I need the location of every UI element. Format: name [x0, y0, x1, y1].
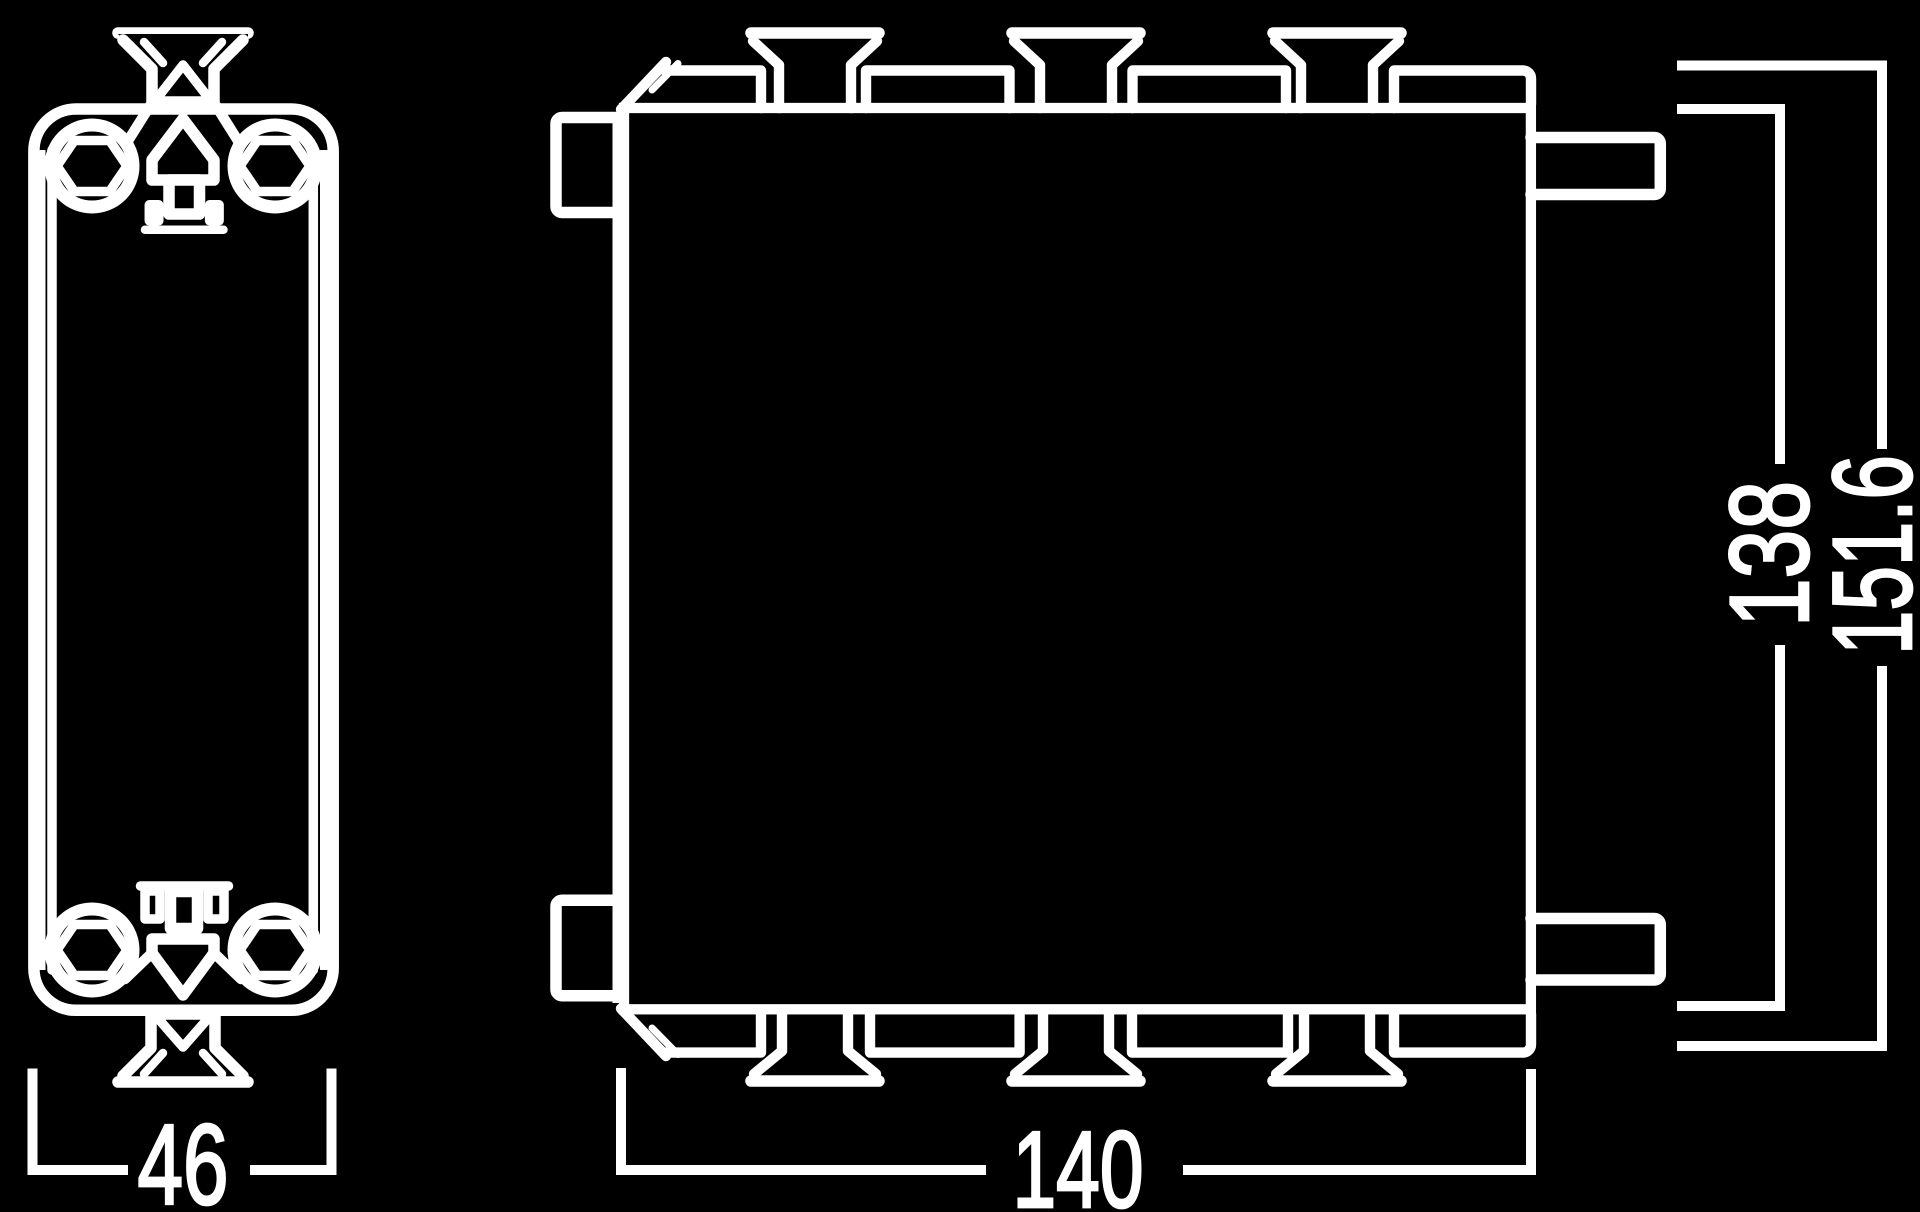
svg-text:46: 46	[138, 1102, 229, 1212]
svg-text:151.6: 151.6	[1810, 455, 1920, 655]
svg-text:140: 140	[1013, 1109, 1144, 1212]
